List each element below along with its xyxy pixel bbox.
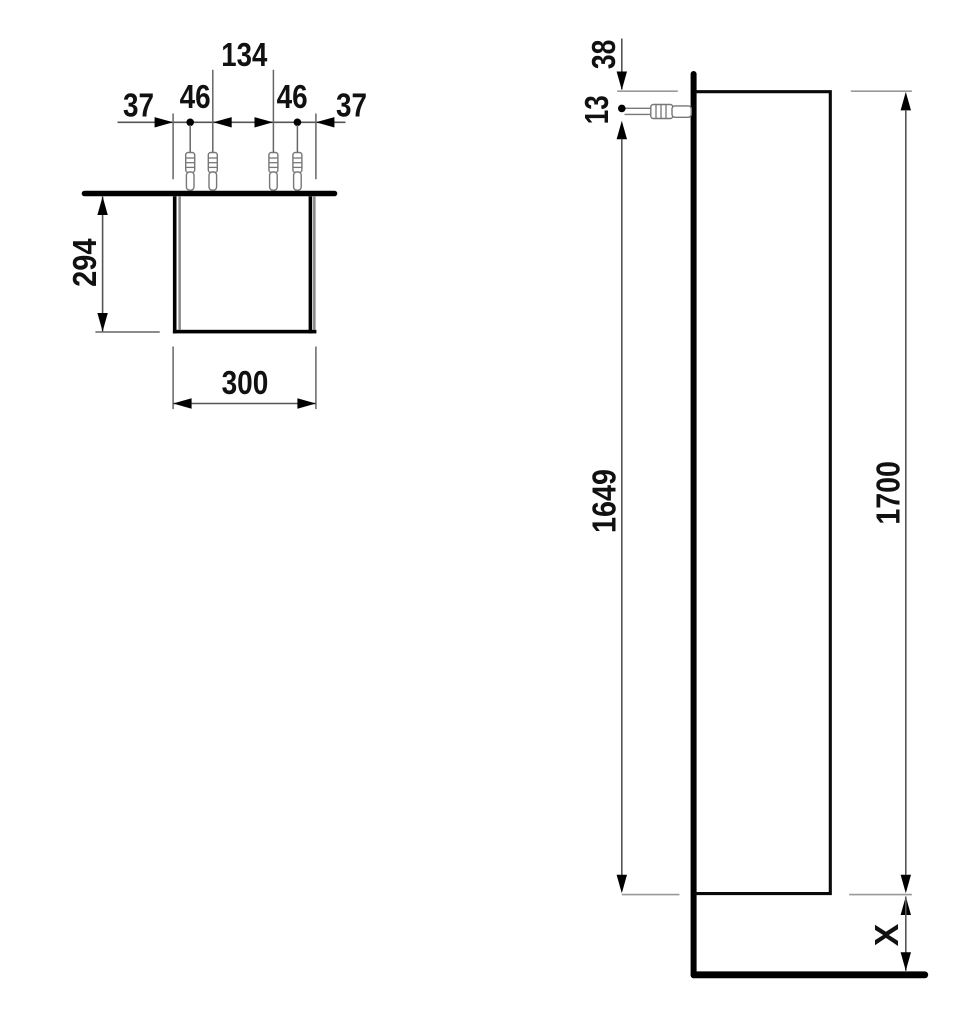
svg-text:46: 46 xyxy=(277,78,308,115)
svg-text:300: 300 xyxy=(222,364,269,401)
svg-text:1700: 1700 xyxy=(869,461,906,525)
svg-text:13: 13 xyxy=(578,95,615,124)
svg-text:37: 37 xyxy=(336,86,367,123)
svg-text:46: 46 xyxy=(180,78,211,115)
svg-text:294: 294 xyxy=(66,238,103,287)
svg-text:134: 134 xyxy=(221,36,268,73)
svg-text:X: X xyxy=(868,924,905,947)
svg-text:1649: 1649 xyxy=(586,469,623,533)
svg-text:37: 37 xyxy=(123,86,154,123)
svg-text:38: 38 xyxy=(585,40,622,70)
